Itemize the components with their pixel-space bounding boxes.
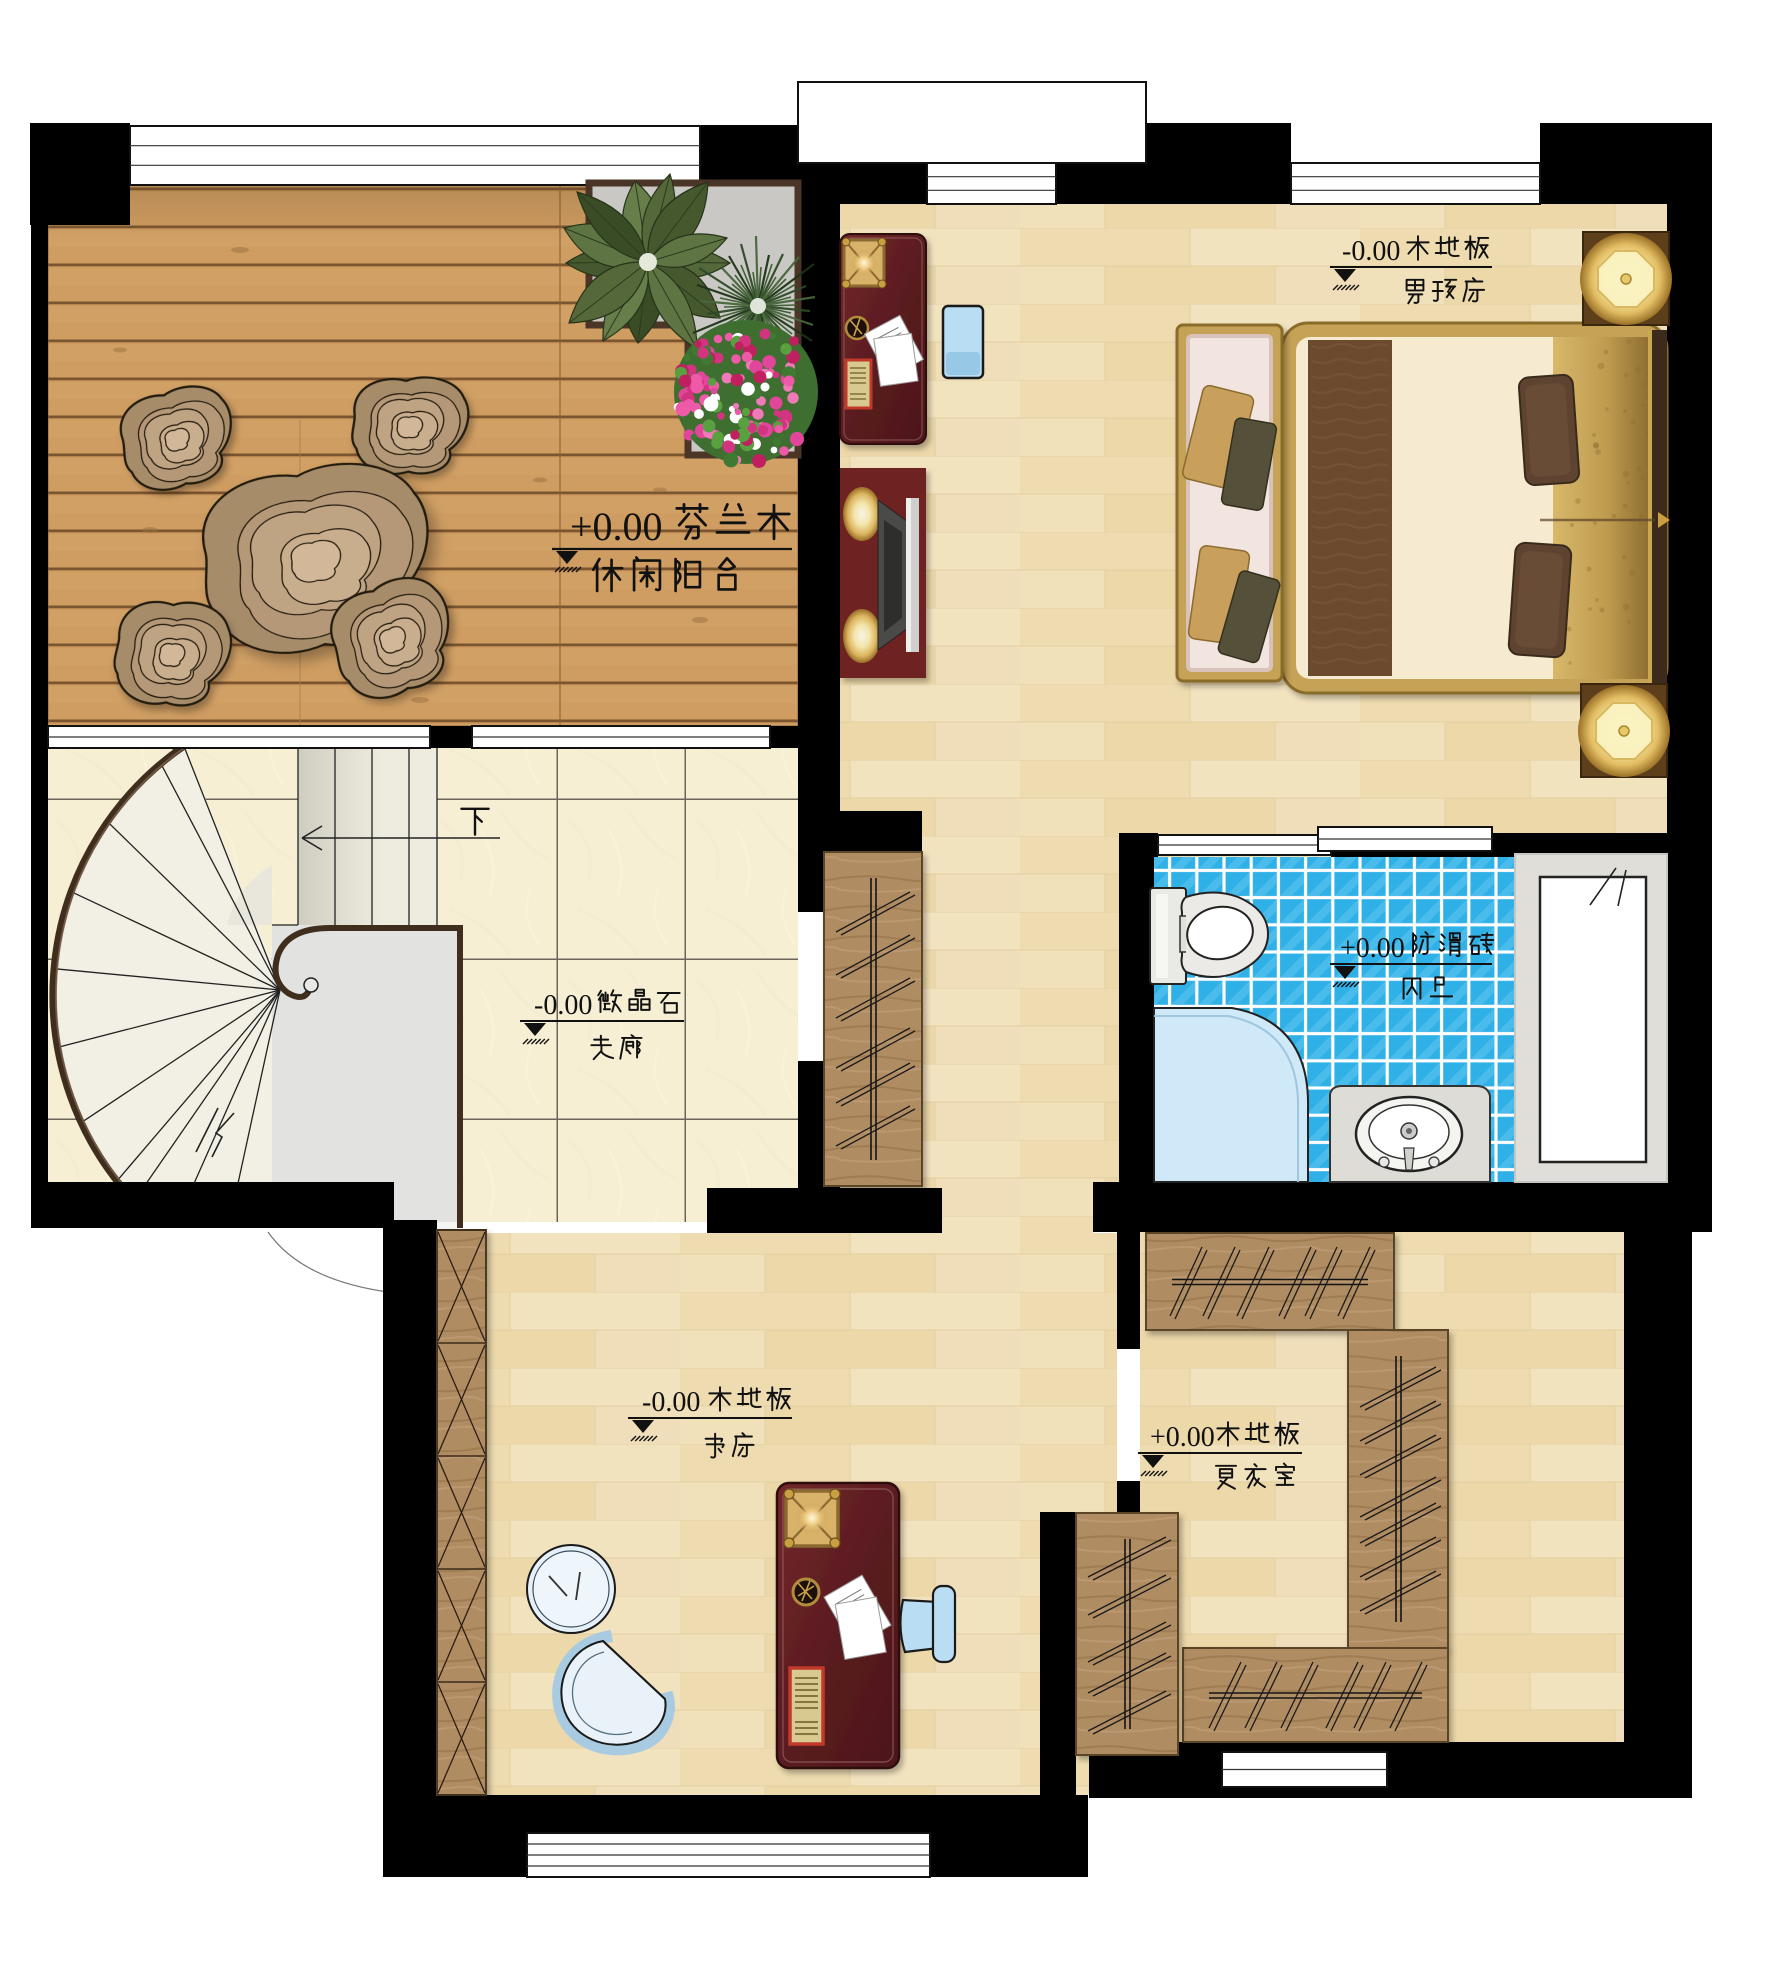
svg-text:-0.00: -0.00 [534,990,592,1021]
svg-text:+0.00: +0.00 [570,504,663,549]
svg-text:-0.00: -0.00 [1342,236,1400,267]
svg-text:+0.00: +0.00 [1340,933,1405,964]
svg-text:-0.00: -0.00 [642,1387,700,1418]
svg-text:+0.00: +0.00 [1150,1422,1215,1453]
